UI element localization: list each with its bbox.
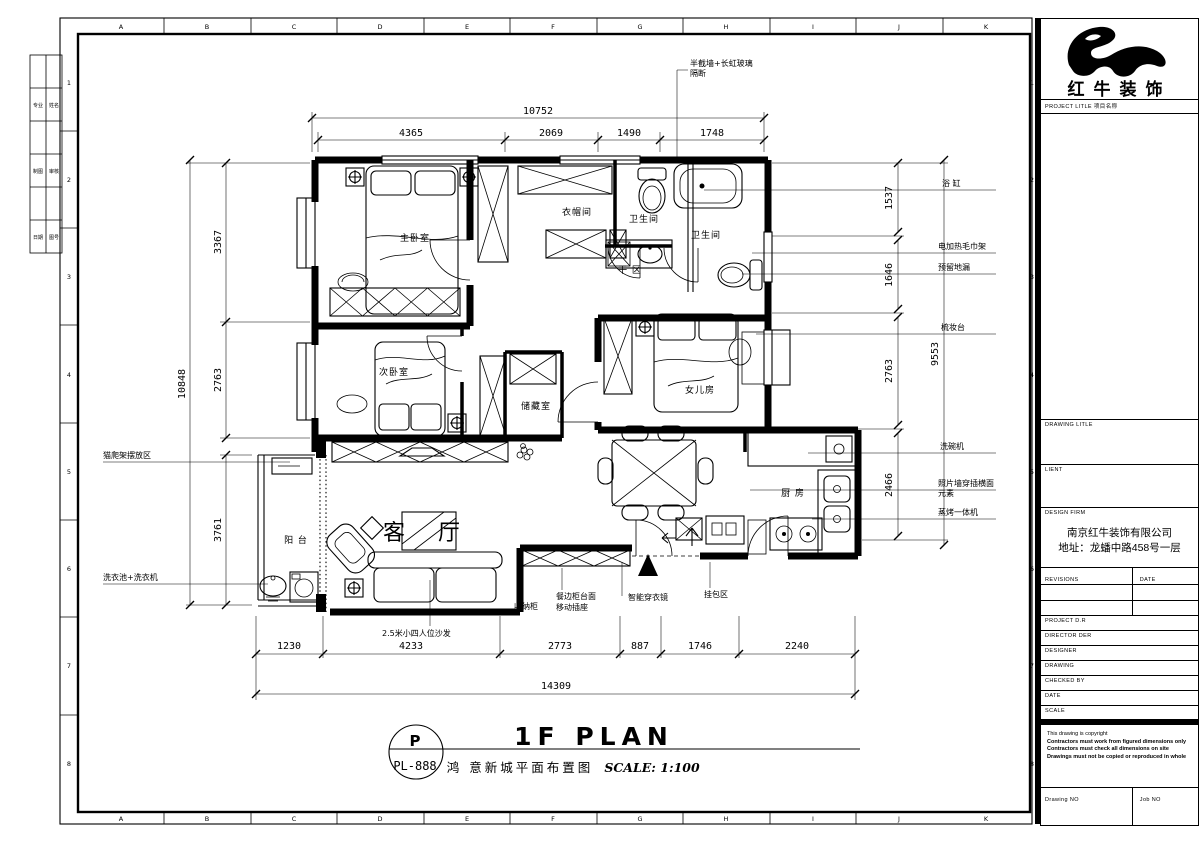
dim-right: 1537	[884, 186, 895, 210]
dim-bottom: 4233	[399, 641, 423, 652]
room-label-living: 客 厅	[383, 521, 473, 546]
ceiling-lamp-icon	[346, 168, 364, 186]
grid-letter: J	[897, 23, 900, 31]
stamp-letter: P	[410, 732, 421, 750]
grid-letter: K	[984, 815, 989, 823]
grid-letter: F	[551, 815, 555, 823]
room-label-master: 主卧室	[400, 232, 430, 244]
grid-letter: G	[637, 815, 642, 823]
dim-bottom: 1230	[277, 641, 301, 652]
dim-top: 1748	[700, 128, 724, 139]
room-label-balcony: 阳 台	[284, 534, 308, 546]
client-label: LIENT	[1041, 465, 1198, 473]
callout-photo-wall: 照片墙穿插横面	[938, 478, 994, 488]
date-row: DATE	[1041, 690, 1198, 705]
grid-letter: B	[205, 815, 209, 823]
grid-letter: E	[465, 815, 469, 823]
grid-number: 3	[1030, 273, 1034, 281]
grid-number: 5	[1030, 468, 1034, 476]
plant-icon	[517, 444, 533, 460]
callout-bathtub: 浴 缸	[942, 178, 961, 188]
firm-name: 南京红牛装饰有限公司	[1041, 526, 1198, 541]
plan-scale: SCALE: 1:100	[604, 760, 700, 775]
callout-sofa: 2.5米小四人位沙发	[382, 628, 451, 638]
copyright-bold-line: Drawings must not be copied or reproduce…	[1047, 754, 1198, 762]
grid-number: 6	[67, 565, 71, 573]
dim-left-total: 10848	[177, 369, 188, 399]
grid-letter: D	[377, 815, 382, 823]
dim-left: 2763	[213, 368, 224, 392]
grid-number: 5	[67, 468, 71, 476]
entry-arrow-icon	[638, 554, 658, 576]
dim-bottom-total: 14309	[541, 681, 571, 692]
room-label-bath1: 卫生间	[629, 213, 659, 225]
dim-left: 3367	[213, 230, 224, 254]
grid-number: 7	[1030, 662, 1034, 670]
dim-bottom: 2240	[785, 641, 809, 652]
callout-dishwasher: 洗碗机	[940, 441, 964, 451]
grid-numbers: 1 2 3 4 5 6 7 8 1 2 3 4 5 6 7 8	[67, 79, 1034, 768]
project-dir-row: PROJECT D.R	[1041, 615, 1198, 630]
drawing-sheet: A B C D E F G H I J K A B C D E F G H I …	[0, 0, 1200, 844]
floor-socket-icon	[345, 579, 363, 597]
grid-number: 2	[1030, 176, 1034, 184]
grid-number: 2	[67, 176, 71, 184]
callout-sideboard: 餐边柜台面	[556, 591, 596, 601]
plan-title-cn: 鸿 意新城平面布置图	[447, 760, 593, 775]
callout-photo-wall: 元素	[938, 488, 954, 498]
dim-top: 4365	[399, 128, 423, 139]
bull-logo-icon	[1041, 21, 1196, 77]
signoff-cell: 专业	[33, 102, 43, 109]
dim-top-total: 10752	[523, 106, 553, 117]
grid-letter: J	[897, 815, 900, 823]
client-field: LIENT	[1041, 464, 1198, 507]
room-labels: 主卧室 衣帽间 卫生间 卫生间 干 区 次卧室 储藏室 女儿房 厨 房 客 厅 …	[284, 206, 805, 546]
revisions-table: REVISIONS DATE	[1041, 567, 1198, 615]
grid-letter: A	[119, 23, 124, 31]
callout-bag-area: 挂包区	[704, 589, 728, 599]
grid-number: 7	[67, 662, 71, 670]
brand-name: 红牛装饰	[1041, 75, 1198, 100]
grid-letter: I	[812, 815, 814, 823]
grid-letter: K	[984, 23, 989, 31]
signoff-cell: 图号	[49, 235, 59, 241]
dim-left: 3761	[213, 518, 224, 542]
grid-number: 4	[67, 371, 71, 379]
drawing-title-field: DRAWING LITLE	[1041, 419, 1198, 464]
callout-dresser: 梳妆台	[941, 322, 965, 332]
checked-by-row: CHECKED BY	[1041, 675, 1198, 690]
revisions-date-label: DATE	[1136, 575, 1156, 583]
callout-mirror: 智能穿衣镜	[628, 592, 668, 602]
firm-address: 地址：龙蟠中路458号一层	[1041, 541, 1198, 556]
grid-letter: H	[724, 23, 729, 31]
design-firm-field: DESIGN FIRM 南京红牛装饰有限公司 地址：龙蟠中路458号一层	[1041, 507, 1198, 567]
dim-right: 2466	[884, 473, 895, 497]
room-label-second: 次卧室	[379, 366, 409, 378]
room-label-kitchen: 厨 房	[781, 487, 805, 499]
callout-floor-drain: 预留地漏	[938, 262, 970, 272]
title-block: 红牛装饰 PROJECT LITLE 项目名称 DRAWING LITLE LI…	[1040, 18, 1199, 826]
dim-bottom: 1746	[688, 641, 712, 652]
grid-letter: G	[637, 23, 642, 31]
dim-right-total: 9553	[930, 342, 941, 366]
room-label-daughter: 女儿房	[685, 384, 715, 396]
callout-laundry: 洗衣池+洗衣机	[103, 572, 158, 582]
grid-letter: B	[205, 23, 209, 31]
revisions-label: REVISIONS	[1041, 575, 1131, 583]
callout-cat-tree: 猫爬架摆放区	[103, 450, 151, 460]
signoff-cell: 制图	[33, 168, 43, 175]
stamp-number: PL-888	[393, 759, 436, 773]
dim-top: 1490	[617, 128, 641, 139]
grid-letters-bottom: A B C D E F G H I J K	[119, 815, 989, 823]
job-no-label: Job NO	[1136, 795, 1161, 803]
project-title-label: PROJECT LITLE 项目名称	[1041, 99, 1198, 114]
signoff-cell: 审核	[49, 168, 59, 175]
grid-letter: E	[465, 23, 469, 31]
grid-number: 8	[1030, 760, 1034, 768]
room-label-bath2: 卫生间	[691, 229, 721, 241]
plan-title-en: 1F PLAN	[514, 722, 674, 751]
drawing-no-label: Drawing NO	[1041, 795, 1131, 803]
callout-sideboard: 移动插座	[556, 602, 588, 612]
drawing-row: DRAWING	[1041, 660, 1198, 675]
project-title-field	[1041, 114, 1198, 419]
signoff-strip: 专业 姓名 制图 审核 日期 图号	[30, 55, 62, 253]
footer-title: P PL-888 1F PLAN 鸿 意新城平面布置图 SCALE: 1:100	[389, 722, 860, 779]
callout-towel-rack: 电加热毛巾架	[938, 241, 986, 251]
grid-letter: A	[119, 815, 124, 823]
grid-letter: H	[724, 815, 729, 823]
grid-letter: F	[551, 23, 555, 31]
signoff-cell: 日期	[33, 235, 43, 241]
grid-number: 4	[1030, 371, 1034, 379]
grid-letter: D	[377, 23, 382, 31]
number-row: Drawing NO Job NO	[1041, 787, 1198, 825]
grid-letter: C	[292, 815, 297, 823]
grid-number: 1	[67, 79, 71, 87]
room-label-storage: 储藏室	[521, 400, 551, 412]
copyright-bold-line: Contractors must check all dimensions on…	[1047, 746, 1198, 754]
room-label-dry: 干 区	[618, 265, 642, 276]
signoff-cell: 姓名	[49, 102, 59, 109]
scale-row: SCALE	[1041, 705, 1198, 719]
dim-right: 2763	[884, 359, 895, 383]
director-row: DIRECTOR DER	[1041, 630, 1198, 645]
brand-area: 红牛装饰	[1041, 19, 1198, 99]
copyright-bold-line: Contractors must work from figured dimen…	[1047, 739, 1198, 747]
callout-partition: 半截墙+长虹玻璃	[690, 58, 753, 68]
copyright-line: This drawing is copyright	[1047, 731, 1108, 737]
design-firm-label: DESIGN FIRM	[1041, 508, 1198, 516]
ceiling-lamp-icon	[460, 168, 478, 186]
floor-plan-svg: A B C D E F G H I J K A B C D E F G H I …	[0, 0, 1200, 844]
lounge-chair	[323, 520, 379, 577]
callout-storage-cabinet: 收纳柜	[514, 601, 538, 611]
grid-number: 3	[67, 273, 71, 281]
grid-number: 1	[1030, 79, 1034, 87]
designer-row: DESIGNER	[1041, 645, 1198, 660]
callout-partition: 隔断	[690, 68, 706, 78]
dim-bottom: 887	[631, 641, 649, 652]
drawing-title-label: DRAWING LITLE	[1041, 420, 1198, 428]
dim-right: 1646	[884, 263, 895, 287]
grid-letters-top: A B C D E F G H I J K	[119, 23, 989, 31]
grid-number: 8	[67, 760, 71, 768]
copyright-block: This drawing is copyright Contractors mu…	[1041, 725, 1198, 787]
grid-letter: C	[292, 23, 297, 31]
grid-letter: I	[812, 23, 814, 31]
room-label-cloak: 衣帽间	[562, 206, 592, 218]
grid-number: 6	[1030, 565, 1034, 573]
dim-top: 2069	[539, 128, 563, 139]
dim-bottom: 2773	[548, 641, 572, 652]
